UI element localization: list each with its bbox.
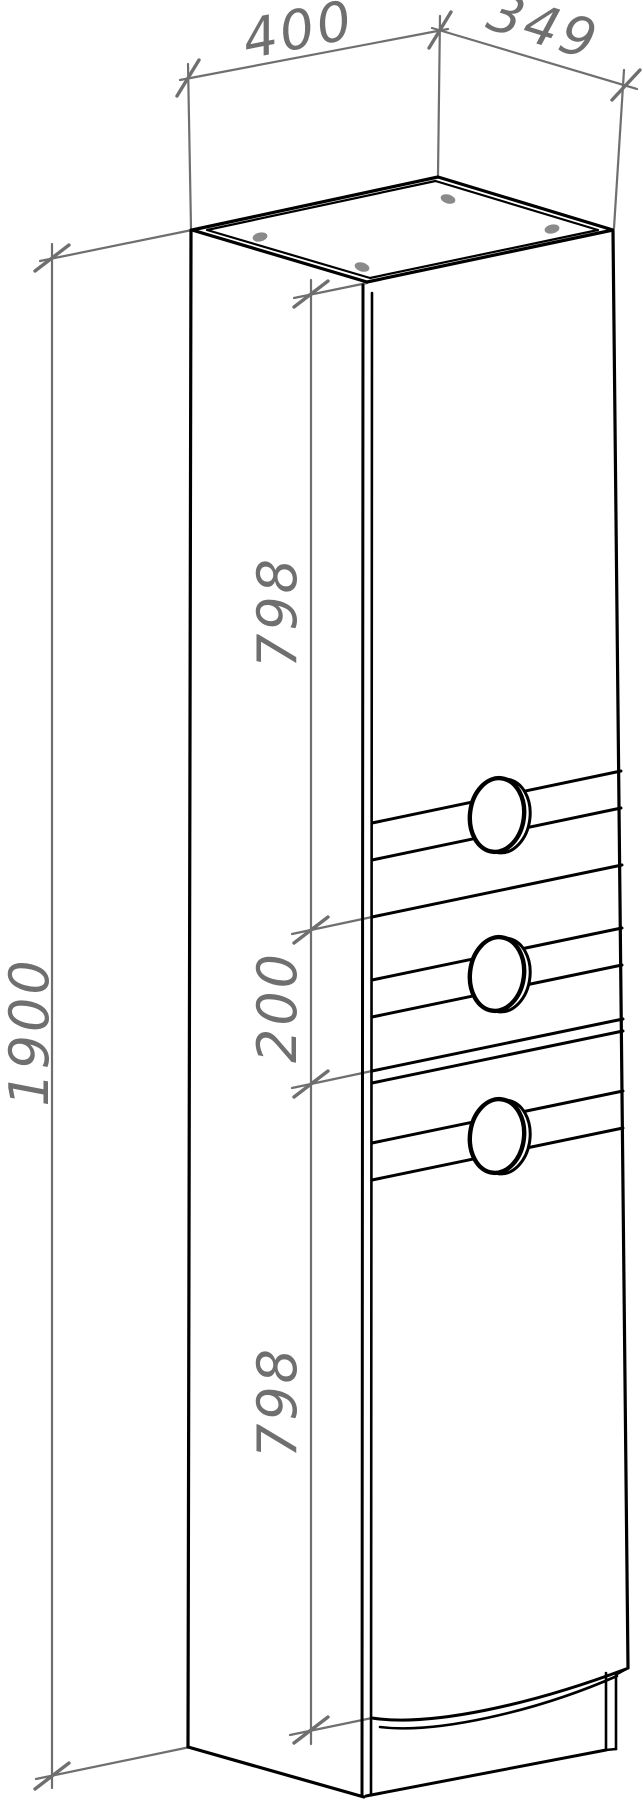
dim-label-upper-798: 798 (246, 556, 309, 668)
extension-line-top-apex (438, 16, 440, 175)
extension-line-front-bottom (290, 1718, 372, 1735)
extension-line-drawer-top (292, 917, 372, 934)
door-edge-inner (371, 293, 372, 1794)
dimension-labels: 400 349 1900 798 200 798 (0, 0, 606, 1458)
cabinet-top-face-inner (207, 181, 598, 278)
door-handle-knob-1 (466, 775, 535, 856)
extension-line-height-bottom (36, 1747, 190, 1779)
drawer-handle-knob-2 (466, 934, 535, 1015)
dim-label-middle-200: 200 (246, 951, 309, 1063)
fastener-dot-left (252, 231, 269, 243)
drawer-bottom-line (372, 1019, 623, 1071)
extension-line-height-top (40, 230, 192, 261)
door-handle-knob-3 (466, 1096, 535, 1177)
dimension-layer (35, 12, 640, 1789)
lower-door-bottom-curve (372, 1669, 626, 1720)
drawer-top-line (372, 865, 622, 917)
dim-label-width-400: 400 (237, 0, 359, 71)
technical-drawing-canvas: 400 349 1900 798 200 798 (0, 0, 643, 1800)
cabinet-dimension-drawing: 400 349 1900 798 200 798 (0, 0, 643, 1800)
dim-label-height-1900: 1900 (0, 957, 61, 1106)
side-bottom-edge (188, 1747, 364, 1797)
door-edge-outer (362, 285, 363, 1796)
extension-line-top-left (188, 64, 191, 228)
extension-line-drawer-bottom (292, 1071, 372, 1088)
cabinet-right-edge (613, 231, 628, 1668)
tick-349-right (612, 70, 640, 100)
fastener-dot-front (354, 261, 371, 274)
fastener-dot-right (544, 223, 561, 235)
fastener-dot-back (440, 193, 457, 206)
cabinet-left-edge (188, 230, 191, 1747)
extension-line-front-top (294, 283, 367, 298)
dim-label-lower-798: 798 (246, 1346, 309, 1458)
plinth-bottom-edge (366, 1750, 606, 1796)
plinth-right-foot-bottom (606, 1749, 616, 1750)
lower-door-top-line (372, 1031, 623, 1083)
